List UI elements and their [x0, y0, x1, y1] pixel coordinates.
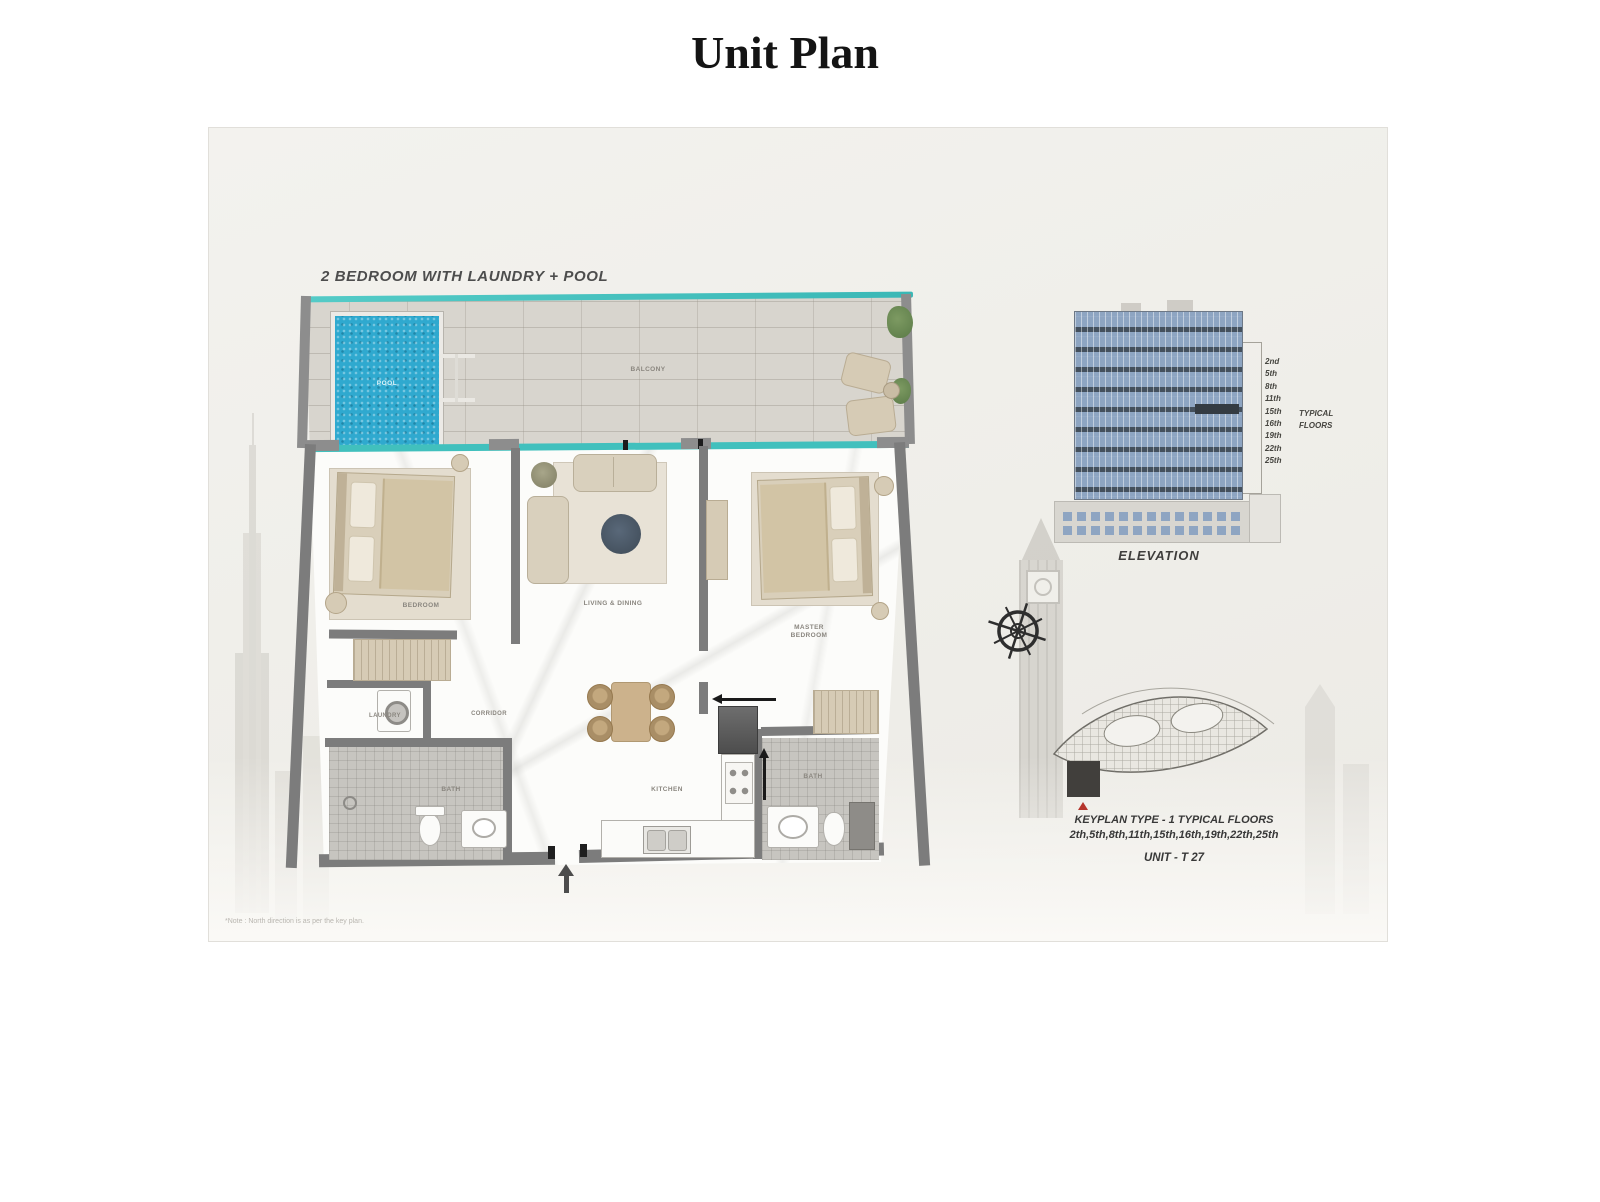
tv-console	[706, 500, 728, 580]
floor-item: 22th	[1265, 443, 1281, 455]
elevation-podium	[1054, 501, 1280, 543]
master-bedroom-label: MASTER BEDROOM	[769, 624, 849, 640]
floor-item: 16th	[1265, 418, 1281, 430]
tower	[1343, 764, 1369, 914]
podium-windows	[1063, 526, 1245, 535]
ladder-stile	[455, 354, 458, 402]
podium-annex	[1249, 494, 1281, 543]
plan-heading: 2 BEDROOM WITH LAUNDRY + POOL	[321, 268, 608, 285]
blanket	[760, 483, 830, 593]
shower-drain	[343, 796, 357, 810]
nightstand	[451, 454, 469, 472]
door-stub	[623, 440, 628, 450]
master-bath-label: BATH	[783, 773, 843, 781]
fridge	[718, 706, 758, 754]
rooftop-block	[1167, 300, 1193, 311]
dining-chair	[587, 716, 613, 742]
stove	[725, 762, 753, 804]
highlighted-unit-band	[1195, 404, 1239, 414]
sink-bowl	[778, 815, 808, 839]
entrance-arrow	[557, 864, 575, 896]
podium-windows	[1063, 512, 1245, 521]
master-label-line2: BEDROOM	[769, 632, 849, 640]
typical-line2: FLOORS	[1299, 420, 1333, 432]
section-marker	[721, 698, 776, 701]
floor-bracket	[1243, 342, 1262, 494]
pool: POOL	[331, 312, 443, 454]
side-table	[883, 382, 900, 399]
kitchen-sink	[643, 826, 691, 854]
balcony-label: BALCONY	[621, 366, 675, 374]
dining-table	[611, 682, 651, 742]
sofa-seam	[613, 457, 614, 487]
watermark-towers-right	[1305, 684, 1375, 914]
corridor-label: CORRIDOR	[459, 711, 519, 719]
section-arrow	[759, 748, 769, 758]
wall	[327, 680, 431, 688]
dining-chair	[649, 684, 675, 710]
wall	[297, 296, 311, 448]
floor-item: 25th	[1265, 455, 1281, 467]
floor-item: 11th	[1265, 393, 1281, 405]
floor-item: 8th	[1265, 381, 1281, 393]
wall	[511, 448, 520, 644]
dining-chair	[587, 684, 613, 710]
section-arrow	[712, 694, 722, 704]
bedroom-label: BEDROOM	[391, 602, 451, 610]
elevation-label: ELEVATION	[1074, 548, 1244, 563]
wall	[325, 738, 511, 747]
laundry-label: LAUNDRY	[357, 713, 413, 721]
sink-bowl	[472, 818, 496, 838]
north-note: *Note : North direction is as per the ke…	[225, 918, 364, 925]
pillow	[349, 481, 377, 528]
arrow-stem	[564, 876, 569, 893]
keyplan-unit-marker	[1078, 802, 1088, 810]
sofa	[527, 496, 569, 584]
page-title: Unit Plan	[0, 26, 1570, 79]
master-label-line1: MASTER	[769, 624, 849, 632]
section-marker	[763, 756, 766, 800]
pillow	[831, 538, 859, 583]
wall	[894, 442, 930, 866]
floor-plan: POOL BALCONY	[291, 286, 936, 904]
keyplan-floors: 2th,5th,8th,11th,15th,16th,19th,22th,25t…	[1049, 829, 1299, 841]
keyplan-unit-highlight	[1067, 761, 1100, 797]
wall	[286, 444, 316, 868]
lounge-chair	[845, 395, 897, 437]
rooftop-block	[1121, 303, 1141, 311]
sink-basin	[668, 830, 687, 851]
plant	[887, 306, 913, 338]
plant	[531, 462, 557, 488]
typical-line1: TYPICAL	[1299, 408, 1333, 420]
door-stub	[548, 846, 555, 859]
unit-plan-page: Unit Plan 2 BEDROOM WITH LAUNDRY + POOL	[0, 0, 1600, 1202]
toilet	[419, 814, 441, 846]
wall	[699, 682, 708, 714]
dining-chair	[649, 716, 675, 742]
floor-item: 2nd	[1265, 356, 1281, 368]
blanket	[379, 479, 453, 591]
pool-label: POOL	[377, 380, 397, 387]
vanity	[849, 802, 875, 850]
keyplan	[1042, 656, 1292, 818]
keyplan-unit: UNIT - T 27	[1049, 852, 1299, 864]
door-stub	[580, 844, 587, 857]
bed	[757, 476, 873, 600]
watermark-burj-tower	[221, 413, 281, 913]
tower-tier	[249, 445, 256, 913]
bed	[333, 472, 455, 598]
arrow-head	[558, 864, 574, 876]
washing-machine	[377, 690, 411, 732]
clock-dial	[1034, 578, 1052, 596]
toilet-tank	[415, 806, 445, 816]
floor-list: 2nd 5th 8th 11th 15th 16th 19th 22th 25t…	[1265, 356, 1281, 468]
typical-floors-caption: TYPICAL FLOORS	[1299, 408, 1333, 433]
bath-label: BATH	[421, 786, 481, 794]
headboard	[334, 473, 347, 591]
compass-icon	[985, 598, 1051, 664]
kitchen-label: KITCHEN	[637, 786, 697, 794]
pool-ladder	[439, 346, 475, 410]
sink-basin	[647, 830, 666, 851]
wardrobe	[813, 690, 879, 734]
coffee-table	[601, 514, 641, 554]
floor-item: 19th	[1265, 430, 1281, 442]
pillow	[347, 535, 375, 582]
pillow	[829, 486, 857, 531]
living-label: LIVING & DINING	[573, 600, 653, 608]
toilet	[823, 812, 845, 846]
armchair	[874, 476, 894, 496]
floor-item: 15th	[1265, 406, 1281, 418]
wardrobe	[353, 639, 451, 681]
nightstand	[871, 602, 889, 620]
tower-spire	[252, 413, 254, 453]
sink-counter	[461, 810, 507, 848]
keyplan-title: KEYPLAN TYPE - 1 TYPICAL FLOORS	[1049, 814, 1299, 826]
nightstand	[325, 592, 347, 614]
tower	[1305, 684, 1335, 914]
plan-card: 2 BEDROOM WITH LAUNDRY + POOL POOL	[208, 127, 1388, 942]
floor-item: 5th	[1265, 368, 1281, 380]
sink-counter	[767, 806, 819, 848]
sofa	[573, 454, 657, 492]
